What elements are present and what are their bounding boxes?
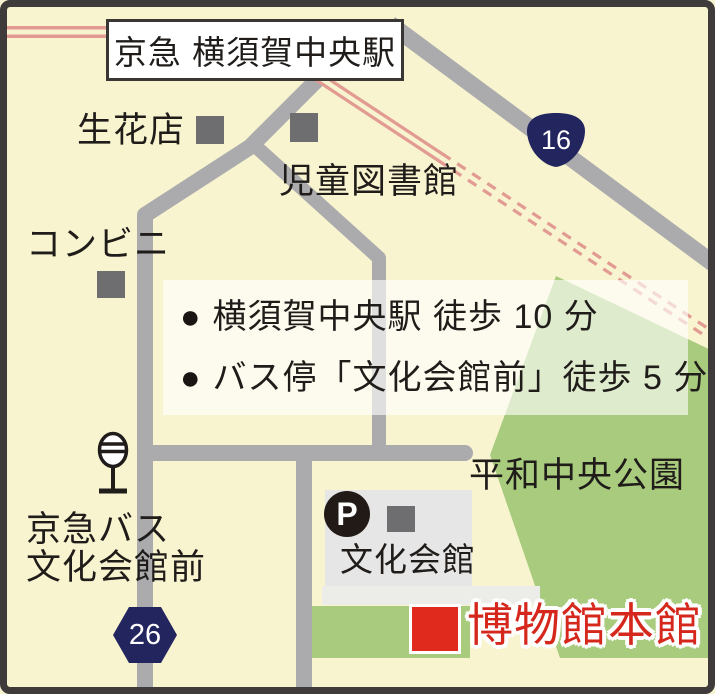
access-map: 京急 横須賀中央駅 生花店 児童図書館 コンビニ 平和中央公園 京急バス 文化会…	[0, 0, 715, 694]
direction-text-bus: バス停「文化会館前」徒歩 5 分	[213, 358, 709, 398]
label-convenience-store: コンビニ	[26, 226, 170, 264]
label-bus-stop: 京急バス 文化会館前	[26, 511, 206, 587]
direction-text-station: 横須賀中央駅 徒歩 10 分	[213, 297, 599, 337]
marker-library-building	[290, 113, 318, 142]
marker-convenience-building	[97, 271, 125, 298]
marker-flower-shop-building	[196, 116, 224, 144]
bus-stop-icon	[94, 430, 136, 496]
marker-culture-hall-building	[387, 506, 415, 532]
station-label-box: 京急 横須賀中央駅	[106, 19, 404, 81]
label-flower-shop: 生花店	[77, 112, 185, 150]
label-bus-stop-line1: 京急バス	[26, 511, 206, 549]
route26-number: 26	[129, 619, 161, 651]
parking-icon: P	[324, 491, 370, 537]
route16-number: 16	[541, 125, 571, 155]
parking-letter: P	[336, 496, 357, 533]
bullet-icon: ●	[180, 361, 201, 395]
label-peace-park: 平和中央公園	[469, 457, 685, 495]
route26-badge-icon: 26	[111, 604, 179, 666]
marker-museum-building	[412, 607, 458, 651]
label-culture-hall: 文化会館	[340, 541, 476, 579]
route16-badge-icon: 16	[524, 111, 588, 169]
station-label: 京急 横須賀中央駅	[114, 26, 396, 74]
direction-row-walk-station: ● 横須賀中央駅 徒歩 10 分	[180, 297, 599, 337]
bullet-icon: ●	[180, 300, 201, 334]
label-children-library: 児童図書館	[279, 163, 459, 201]
direction-row-walk-bus: ● バス停「文化会館前」徒歩 5 分	[180, 358, 708, 398]
label-museum-main: 博物館本館	[467, 599, 702, 651]
label-bus-stop-line2: 文化会館前	[26, 549, 206, 587]
